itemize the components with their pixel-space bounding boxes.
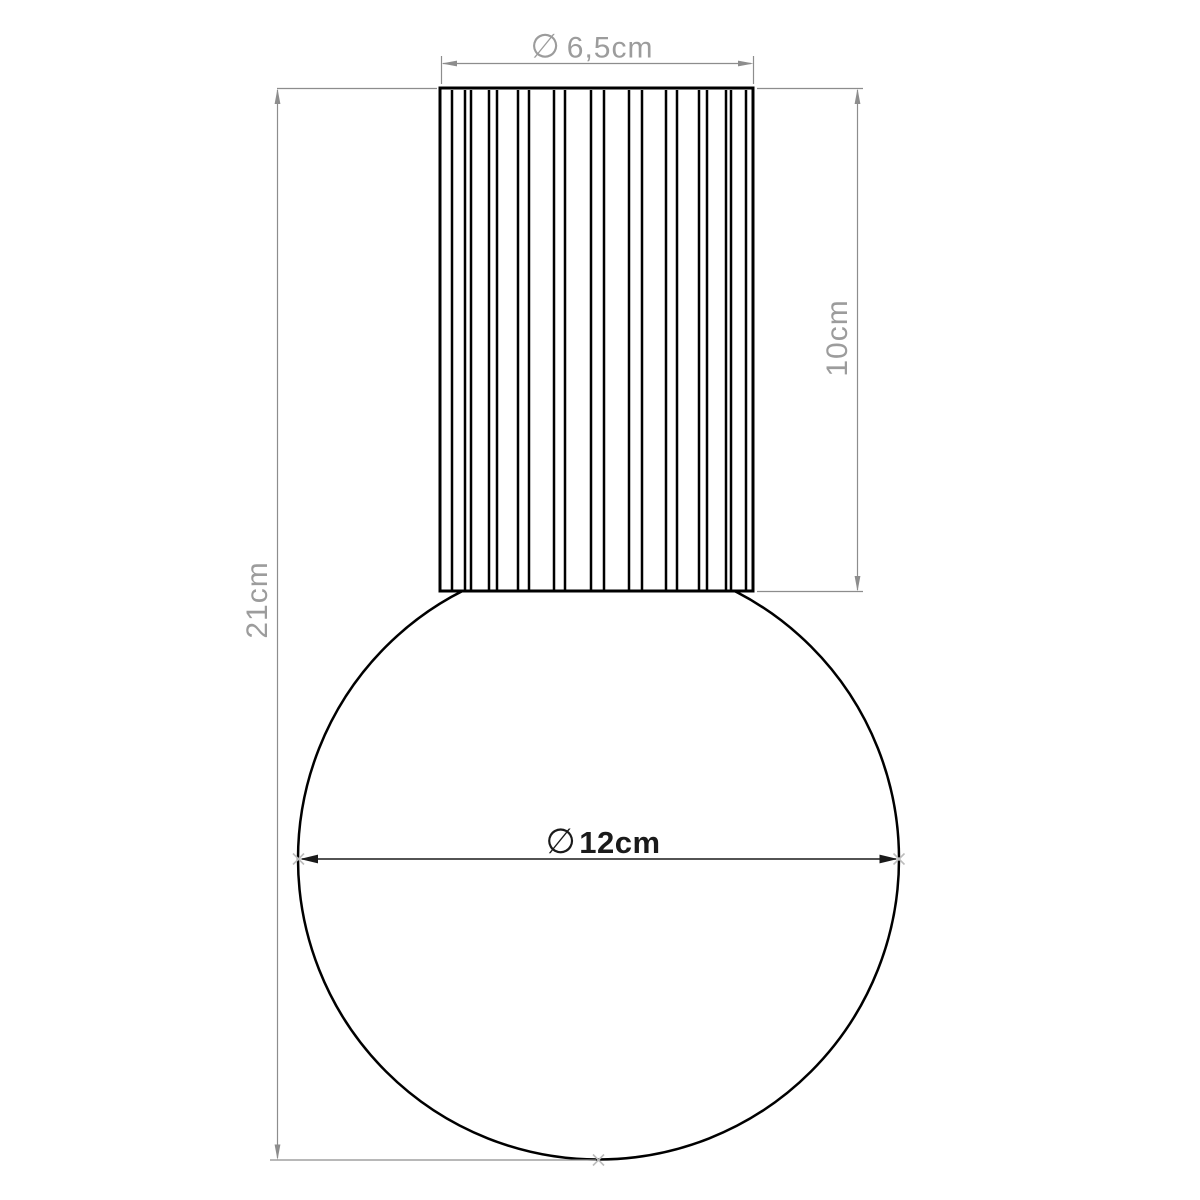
label-shaft-height: 10cm bbox=[821, 299, 855, 376]
diameter-symbol: ∅ bbox=[545, 822, 576, 862]
label-total-height: 21cm bbox=[241, 561, 275, 638]
label-globe-diameter-value: 12cm bbox=[579, 825, 660, 860]
label-top-diameter: ∅6,5cm bbox=[531, 27, 654, 66]
cylinder bbox=[440, 88, 753, 591]
arrowhead-down bbox=[855, 576, 861, 592]
arrowhead-down bbox=[275, 1145, 281, 1161]
arrowhead-right bbox=[738, 61, 754, 67]
arrowhead-up bbox=[855, 89, 861, 105]
label-top-diameter-value: 6,5cm bbox=[567, 32, 654, 65]
diameter-symbol: ∅ bbox=[531, 27, 561, 66]
arrowhead-up bbox=[275, 89, 281, 105]
label-globe-diameter: ∅12cm bbox=[545, 822, 660, 862]
dimension-globe-diameter bbox=[293, 854, 905, 1166]
drawing-svg bbox=[0, 0, 1200, 1200]
dimension-drawing: ∅6,5cm 10cm 21cm ∅12cm bbox=[0, 0, 1200, 1200]
arrowhead-left bbox=[442, 61, 458, 67]
